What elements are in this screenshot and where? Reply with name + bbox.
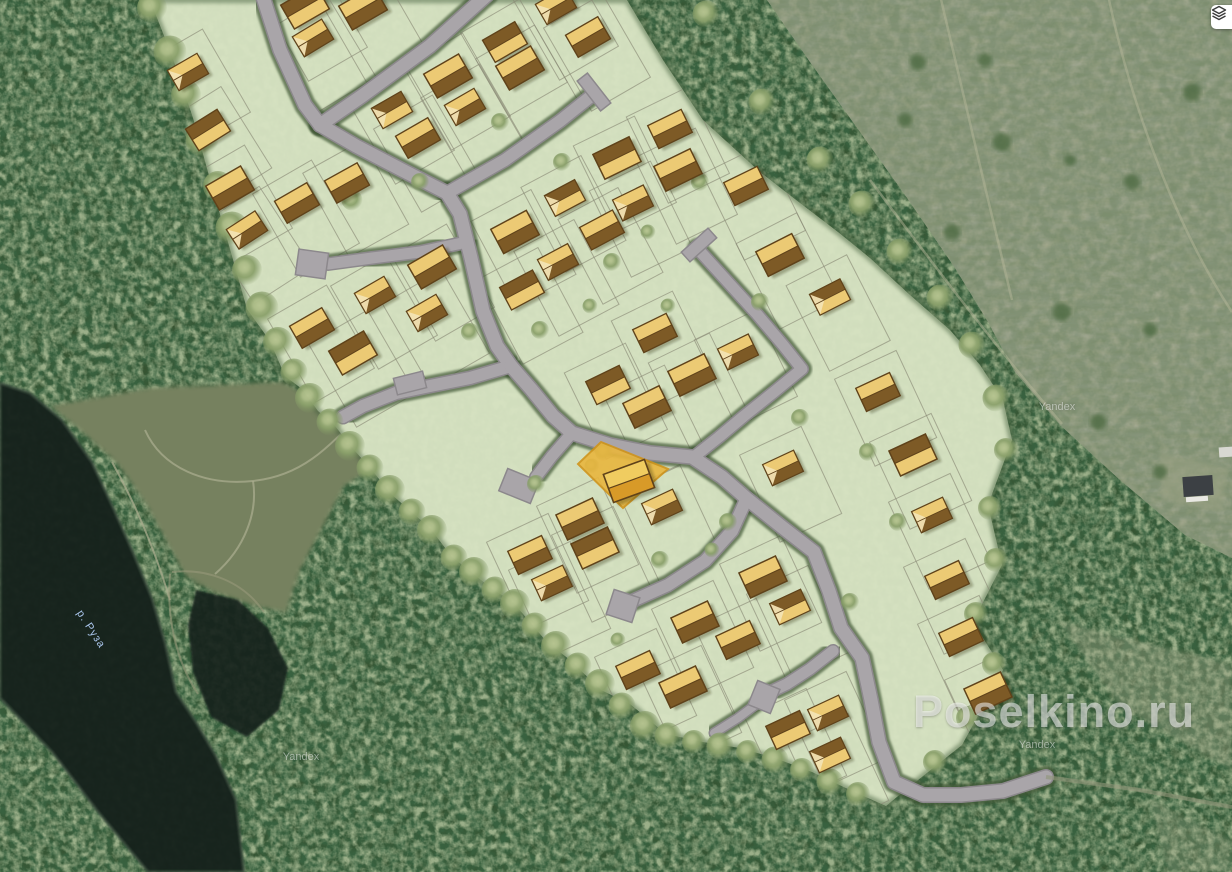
- map-canvas: [0, 0, 1232, 872]
- layers-icon: [1211, 5, 1227, 21]
- map-viewport[interactable]: Poselkino.ru р. Руза YandexYandexYandex: [0, 0, 1232, 872]
- layers-button[interactable]: [1211, 5, 1232, 29]
